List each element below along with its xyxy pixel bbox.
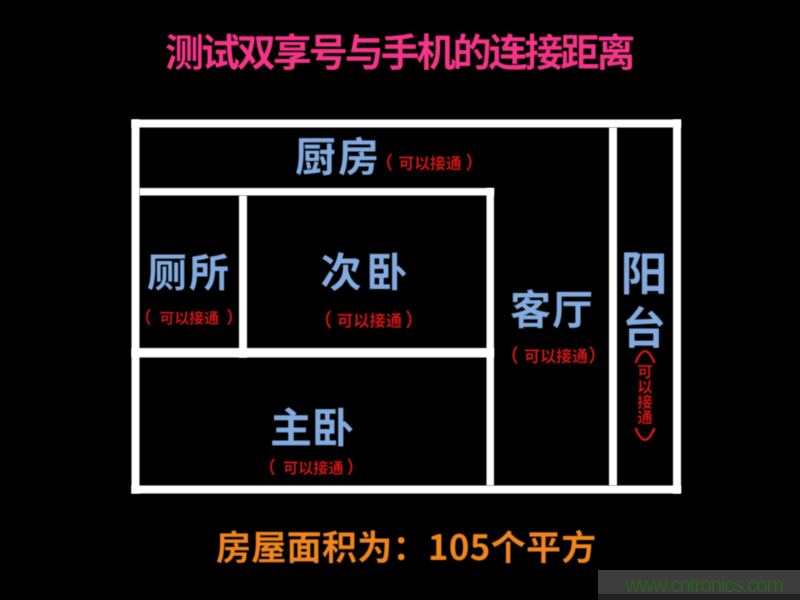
svg-text:www.cntronics.com: www.cntronics.com xyxy=(624,574,783,597)
